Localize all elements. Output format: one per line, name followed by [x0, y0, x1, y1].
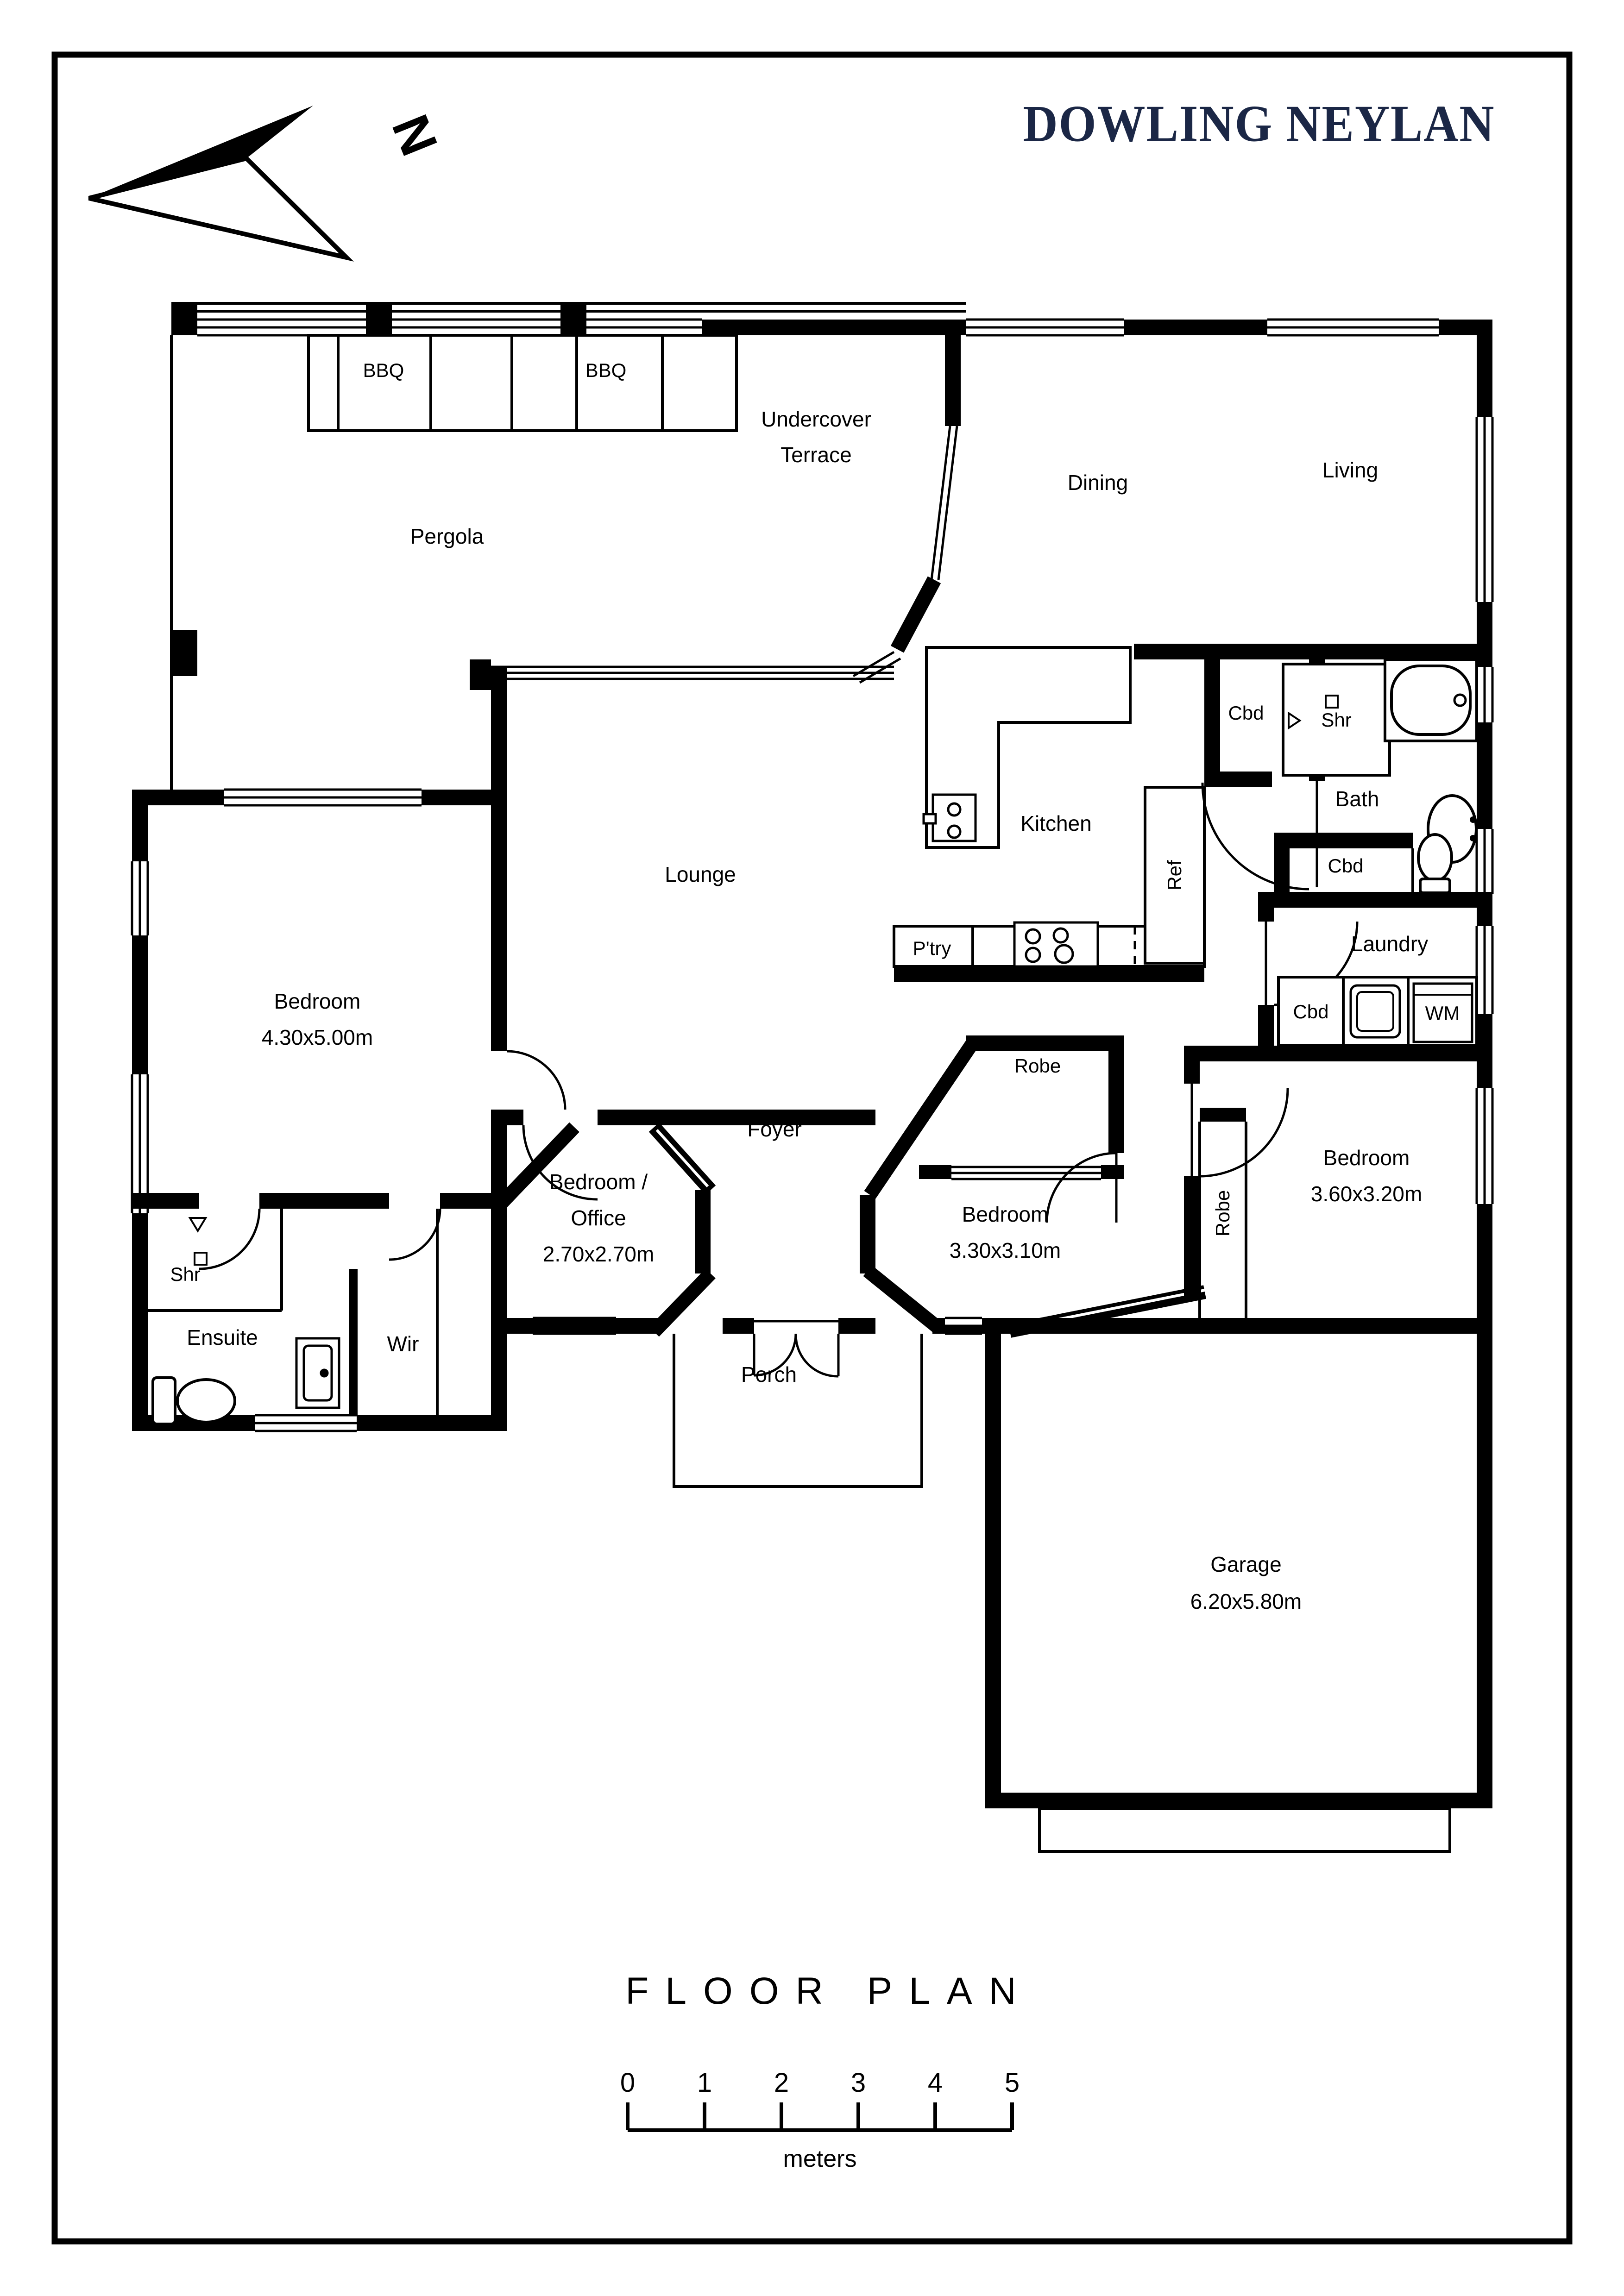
scale-tick-1: 1: [697, 2070, 712, 2096]
scale-tick-5: 5: [1005, 2070, 1020, 2096]
scale-tick-0: 0: [620, 2070, 635, 2096]
scale-tick-4: 4: [928, 2070, 943, 2096]
scale-bar: [0, 0, 1624, 2296]
scale-tick-3: 3: [851, 2070, 866, 2096]
scale-tick-2: 2: [774, 2070, 789, 2096]
floor-plan-page: DOWLING NEYLAN N BBQ BBQ Undercover Terr…: [0, 0, 1624, 2296]
scale-unit-label: meters: [783, 2147, 857, 2171]
